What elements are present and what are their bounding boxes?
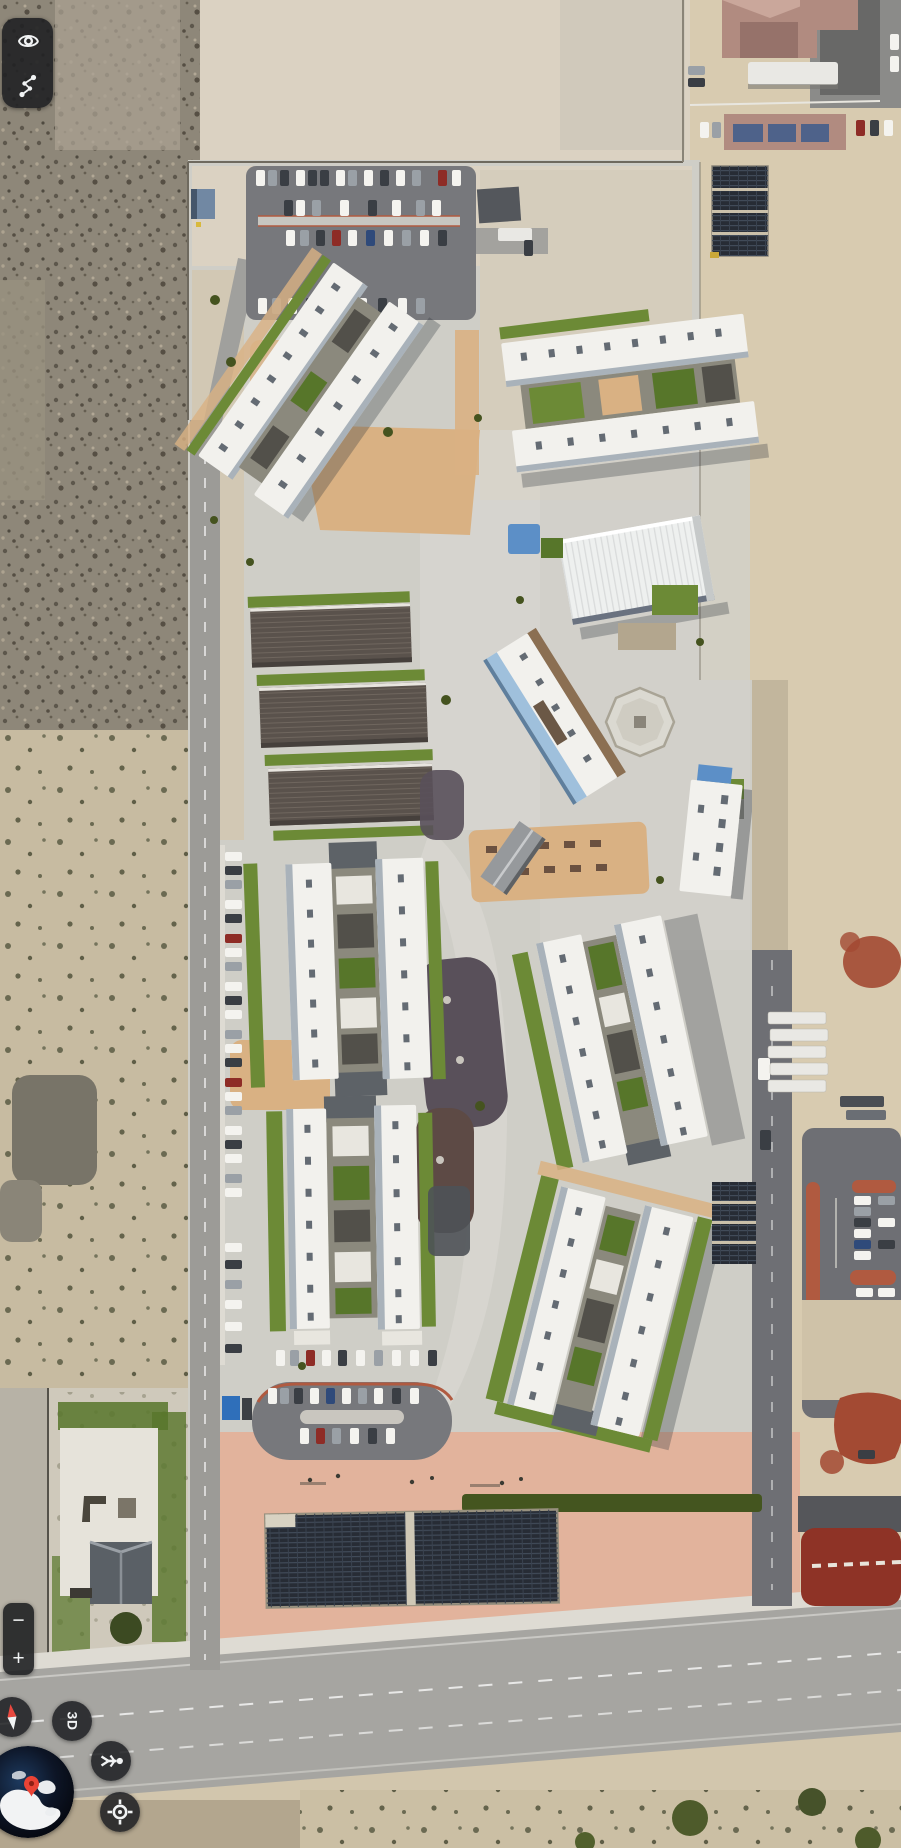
satellite-map[interactable] (0, 0, 901, 1848)
running-track-corner (798, 1496, 901, 1606)
solar-array-south (265, 1509, 559, 1607)
left-toolbar (2, 18, 53, 108)
solar-array-northeast (710, 166, 768, 258)
view-eye-button[interactable] (8, 22, 48, 60)
east-road (752, 680, 792, 1606)
lawn-patch (541, 538, 563, 558)
classroom-rows-brown (248, 591, 436, 841)
3d-label: 3D (64, 1712, 80, 1731)
shade-canopy (428, 1186, 470, 1256)
my-location-button[interactable] (100, 1792, 140, 1832)
eye-icon (15, 28, 41, 54)
3d-view-button[interactable]: 3D (52, 1701, 92, 1741)
measure-path-button[interactable] (8, 67, 48, 105)
apartment-cluster-e (266, 1095, 436, 1348)
pegman-icon (96, 1746, 126, 1776)
octagonal-pavilion (606, 688, 674, 756)
my-location-icon (105, 1797, 135, 1827)
google-earth-viewport: − + 3D (0, 0, 901, 1848)
blue-canopy (508, 524, 540, 554)
compass-needle-icon (0, 1700, 29, 1734)
compass-button[interactable] (0, 1697, 32, 1737)
solar-array-east (712, 1182, 756, 1264)
zoom-controls: − + (3, 1603, 34, 1675)
street-view-button[interactable] (91, 1741, 131, 1781)
measure-path-icon (15, 73, 41, 99)
zoom-in-button[interactable]: + (3, 1645, 34, 1671)
zoom-out-button[interactable]: − (3, 1607, 34, 1633)
